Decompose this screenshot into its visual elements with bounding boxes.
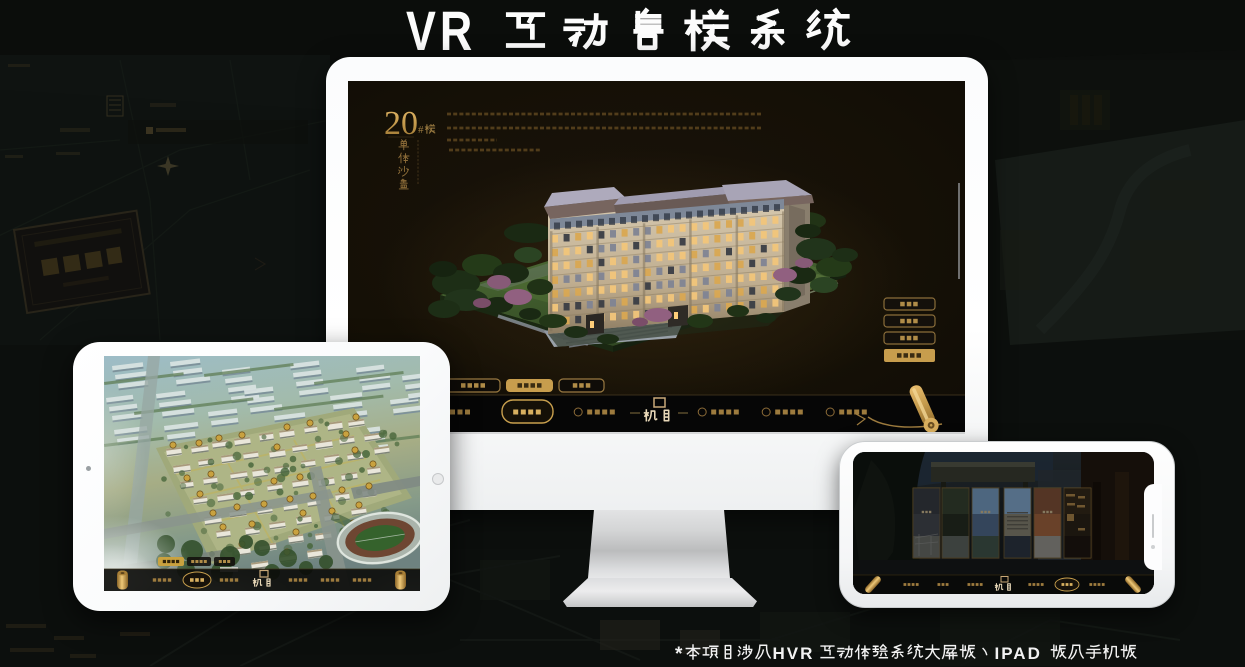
svg-text:#: # xyxy=(418,124,424,136)
svg-text:IPAD: IPAD xyxy=(995,644,1042,663)
svg-text:*: * xyxy=(675,644,683,665)
svg-text:VR: VR xyxy=(406,4,476,58)
svg-text:HVR: HVR xyxy=(773,644,815,663)
svg-text:20: 20 xyxy=(384,105,418,142)
